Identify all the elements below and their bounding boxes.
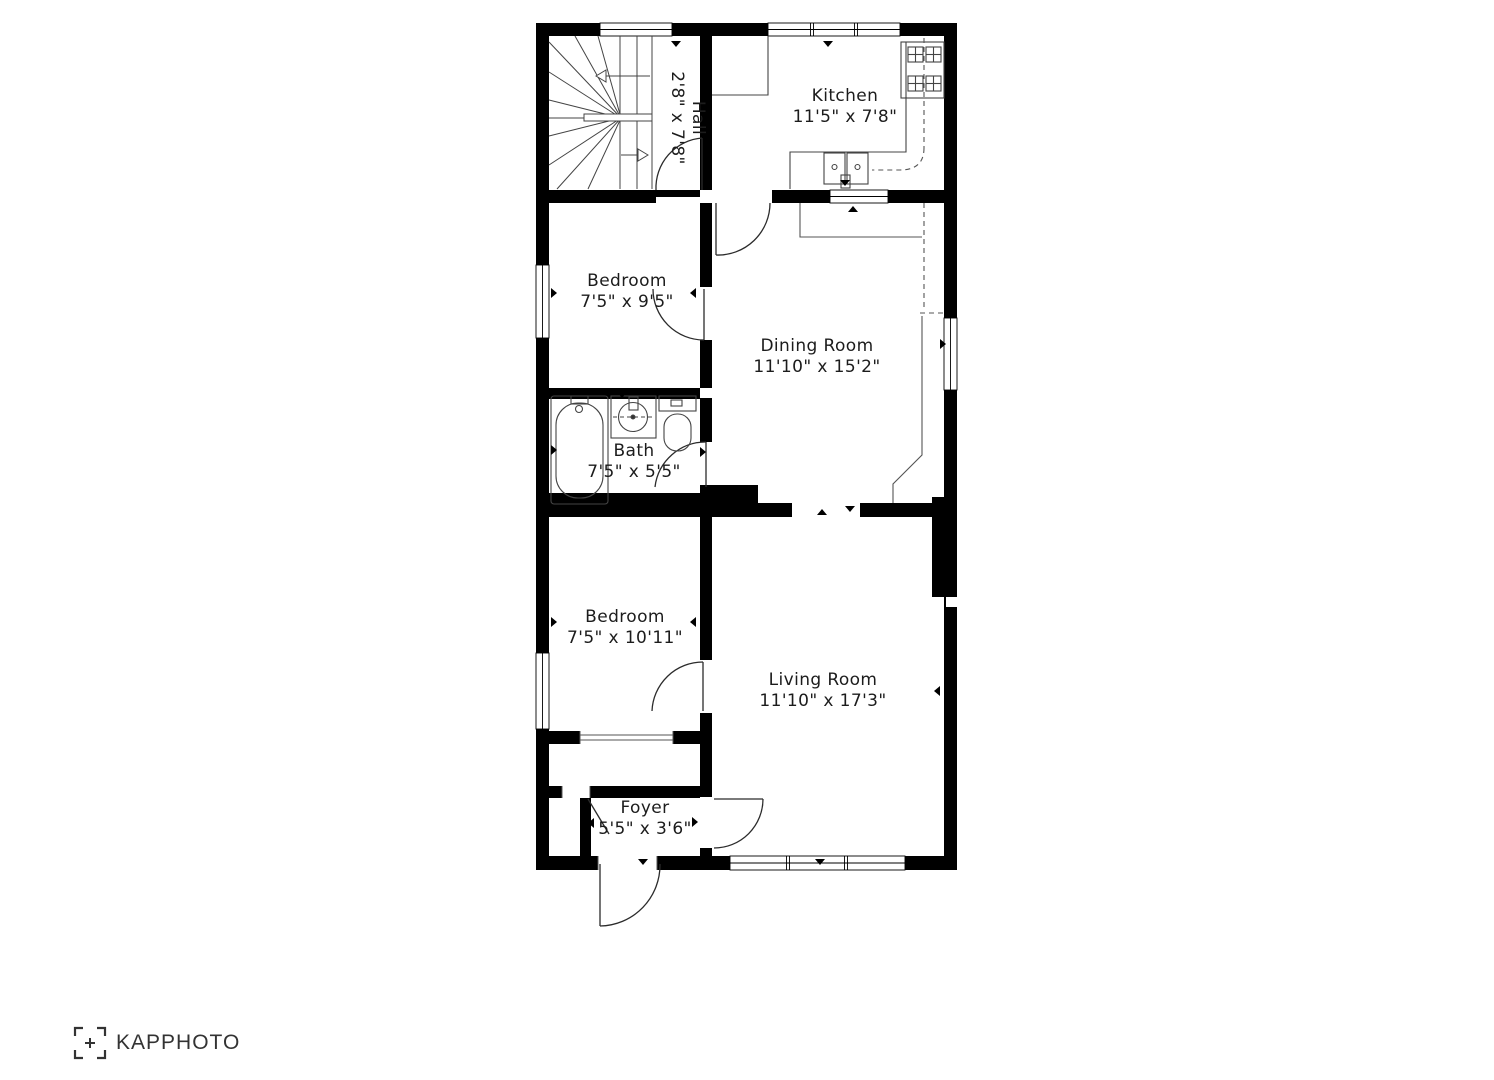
room-label-bedroom-2: Bedroom 7'5" x 10'11" [567, 607, 683, 649]
room-label-bedroom-1: Bedroom 7'5" x 9'5" [580, 271, 674, 313]
dining-closet [800, 203, 922, 237]
room-dims: 7'5" x 10'11" [567, 628, 683, 649]
floor-plan-page: Hall 2'8" x 7'8" Kitchen 11'5" x 7'8" Be… [0, 0, 1494, 1080]
room-label-foyer: Foyer 5'5" x 3'6" [598, 798, 692, 840]
kapphoto-logo: KAPPHOTO [73, 1026, 240, 1060]
room-name: Hall [687, 71, 708, 165]
floor-plan-drawing [0, 0, 1494, 1080]
room-label-hall: Hall 2'8" x 7'8" [666, 71, 708, 165]
corner-counter [712, 36, 768, 95]
staircase-icon [549, 36, 652, 189]
room-dims: 11'10" x 15'2" [753, 357, 880, 378]
room-label-dining-room: Dining Room 11'10" x 15'2" [753, 336, 880, 378]
logo-text: KAPPHOTO [116, 1031, 240, 1055]
room-name: Bedroom [580, 271, 674, 292]
room-label-living-room: Living Room 11'10" x 17'3" [759, 670, 886, 712]
room-name: Foyer [598, 798, 692, 819]
room-dims: 2'8" x 7'8" [666, 71, 687, 165]
room-dims: 7'5" x 9'5" [580, 292, 674, 313]
room-name: Bedroom [567, 607, 683, 628]
room-name: Kitchen [793, 86, 898, 107]
stove-icon [901, 42, 944, 98]
room-dims: 11'10" x 17'3" [759, 691, 886, 712]
chimney-breast [893, 316, 922, 503]
room-name: Bath [587, 441, 681, 462]
room-dims: 5'5" x 3'6" [598, 819, 692, 840]
vanity-sink-icon [611, 396, 656, 438]
cased-opening [580, 731, 673, 744]
camera-frame-icon [73, 1026, 107, 1060]
room-name: Living Room [759, 670, 886, 691]
room-dims: 7'5" x 5'5" [587, 462, 681, 483]
room-label-kitchen: Kitchen 11'5" x 7'8" [793, 86, 898, 128]
room-dims: 11'5" x 7'8" [793, 107, 898, 128]
room-label-bath: Bath 7'5" x 5'5" [587, 441, 681, 483]
room-name: Dining Room [753, 336, 880, 357]
